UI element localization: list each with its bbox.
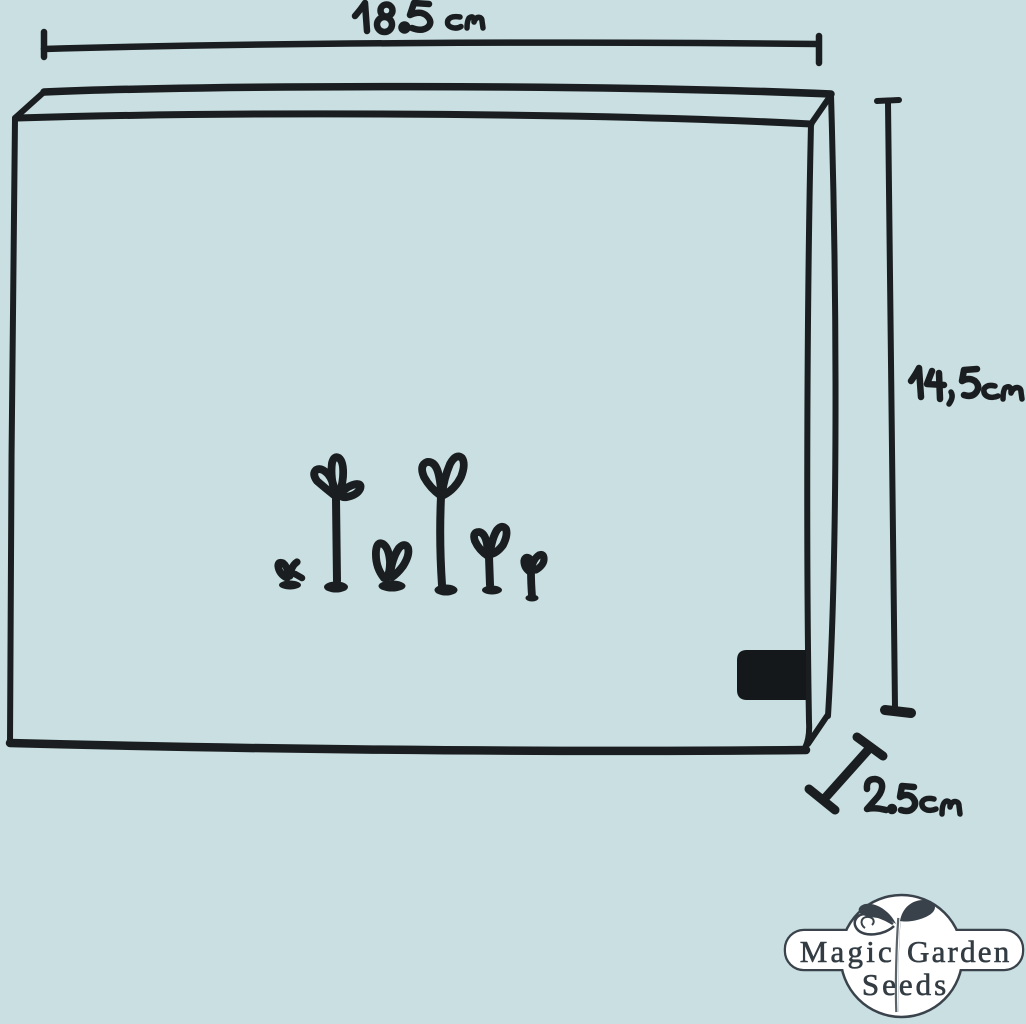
svg-text:Seeds: Seeds	[862, 967, 949, 1002]
svg-text:Magic: Magic	[800, 934, 895, 969]
svg-text:Garden: Garden	[907, 934, 1011, 969]
